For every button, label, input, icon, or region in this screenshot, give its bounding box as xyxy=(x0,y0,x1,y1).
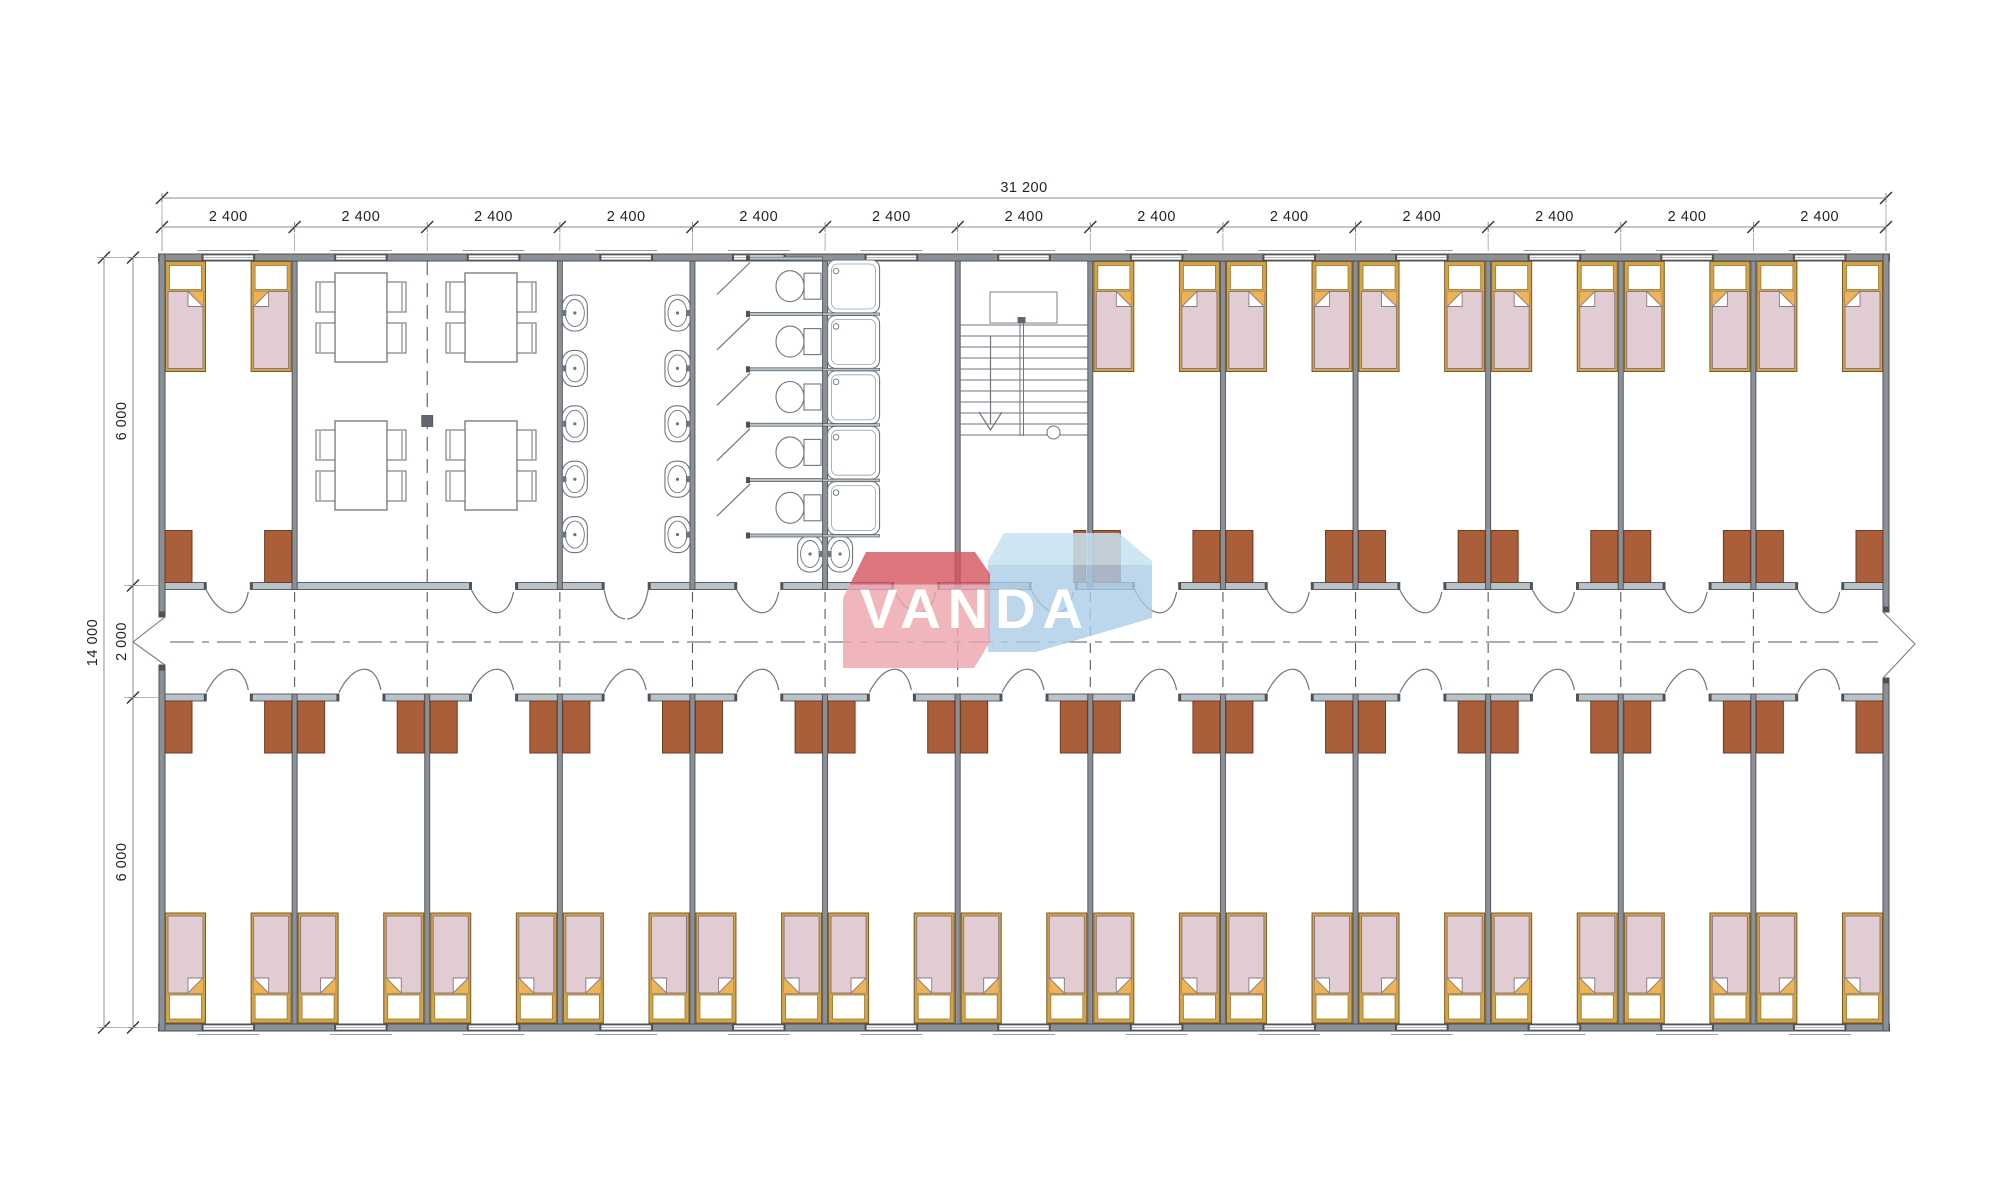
corridor-wall xyxy=(292,694,339,701)
stall-post xyxy=(746,366,750,372)
door-leaf xyxy=(1359,701,1386,753)
window-jamb xyxy=(1049,255,1051,261)
window-jamb xyxy=(467,255,469,261)
chair xyxy=(517,323,536,353)
corridor-wall xyxy=(1444,694,1491,701)
stall-divider xyxy=(748,312,823,315)
bed-pillow xyxy=(170,266,202,290)
module-width-label: 2 400 xyxy=(1535,209,1574,225)
shower-divider xyxy=(823,313,880,316)
wall-end-cap xyxy=(1046,694,1049,701)
drain xyxy=(573,311,576,314)
chair xyxy=(316,282,335,312)
stall-post xyxy=(746,533,750,539)
chair xyxy=(316,430,335,460)
window-jamb xyxy=(1447,255,1449,261)
corridor-wall xyxy=(1444,583,1491,590)
window-jamb xyxy=(1130,255,1132,261)
window-jamb xyxy=(784,1025,786,1031)
wall-end-cap xyxy=(159,612,165,618)
drain xyxy=(676,367,679,370)
bed-pillow xyxy=(255,995,287,1019)
tap xyxy=(819,551,823,557)
door-swing-arc xyxy=(1798,590,1840,613)
door-leaf xyxy=(1359,531,1386,583)
chair xyxy=(446,430,465,460)
tap xyxy=(686,310,690,316)
corridor-wall xyxy=(1179,694,1226,701)
corridor-wall xyxy=(1220,583,1267,590)
corridor-wall xyxy=(1842,583,1889,590)
wall-end-cap xyxy=(734,583,737,590)
wall-end-cap xyxy=(781,583,784,590)
window-jamb xyxy=(1793,1025,1795,1031)
wall-end-cap xyxy=(1709,583,1712,590)
wall-end-cap xyxy=(159,665,165,671)
door-swing-arc xyxy=(1400,669,1442,692)
stall-post xyxy=(746,256,750,262)
door-swing-arc xyxy=(339,669,381,692)
chair xyxy=(316,471,335,501)
door-swing-arc xyxy=(627,590,648,619)
door-leaf xyxy=(1624,531,1651,583)
bed-pillow xyxy=(1847,995,1879,1019)
corridor-wall xyxy=(1751,583,1798,590)
corridor-wall xyxy=(1179,583,1226,590)
exterior-wall-right xyxy=(1883,254,1889,612)
door-leaf xyxy=(928,701,955,753)
bed-pillow xyxy=(1449,266,1481,290)
stall-door xyxy=(717,484,750,516)
bed-pillow xyxy=(786,995,818,1019)
window-jamb xyxy=(518,1025,520,1031)
wall-end-cap xyxy=(913,694,916,701)
door-leaf xyxy=(1756,531,1783,583)
module-wall-bottom xyxy=(690,694,695,1024)
door-leaf xyxy=(165,701,192,753)
door-swing-arc xyxy=(604,669,646,692)
drain xyxy=(676,533,679,536)
bed-pillow xyxy=(1496,995,1528,1019)
column-marker xyxy=(422,416,433,427)
window-jamb xyxy=(1314,1025,1316,1031)
drain xyxy=(573,533,576,536)
dining-table xyxy=(335,421,387,510)
chair xyxy=(387,323,406,353)
stall-door xyxy=(717,263,750,295)
corridor-wall xyxy=(1576,583,1623,590)
door-leaf xyxy=(1060,701,1087,753)
door-leaf xyxy=(430,701,457,753)
corridor-wall xyxy=(1353,583,1400,590)
window-jamb xyxy=(518,255,520,261)
window-jamb xyxy=(1528,1025,1530,1031)
wall-end-cap xyxy=(1530,694,1533,701)
window-jamb xyxy=(1395,255,1397,261)
wall-end-cap xyxy=(602,583,605,590)
corridor-wall xyxy=(160,583,207,590)
corridor-end-door xyxy=(1883,612,1915,678)
drain xyxy=(573,367,576,370)
corridor-wall xyxy=(781,694,828,701)
module-wall-top xyxy=(1751,257,1756,590)
window-jamb xyxy=(1660,1025,1662,1031)
wall-end-cap xyxy=(1265,583,1268,590)
drain xyxy=(808,552,811,555)
wall-end-cap xyxy=(1795,694,1798,701)
wall-end-cap xyxy=(1709,694,1712,701)
drain xyxy=(676,422,679,425)
module-wall-bottom xyxy=(1220,694,1225,1024)
module-wall-bottom xyxy=(1353,694,1358,1024)
wall-end-cap xyxy=(516,694,519,701)
wall-end-cap xyxy=(1842,694,1845,701)
door-swing-arc xyxy=(1267,590,1309,613)
chair xyxy=(316,323,335,353)
bed-pillow xyxy=(255,266,287,290)
window-jamb xyxy=(386,1025,388,1031)
wall-end-cap xyxy=(250,694,253,701)
door-leaf xyxy=(530,701,557,753)
wall-end-cap xyxy=(1397,583,1400,590)
wall-end-cap xyxy=(1444,694,1447,701)
drain xyxy=(573,422,576,425)
tap xyxy=(562,476,566,482)
corridor-wall xyxy=(160,694,207,701)
bed-pillow xyxy=(653,995,685,1019)
staircase xyxy=(960,292,1088,439)
corridor-wall xyxy=(955,694,1002,701)
corridor-wall xyxy=(1353,694,1400,701)
module-wall-bottom xyxy=(1618,694,1623,1024)
wall-end-cap xyxy=(1444,583,1447,590)
corridor-wall xyxy=(250,583,297,590)
door-leaf xyxy=(1756,701,1783,753)
window-jamb xyxy=(334,1025,336,1031)
bed-pillow xyxy=(1183,995,1215,1019)
module-width-label: 2 400 xyxy=(1402,209,1441,225)
wall-end-cap xyxy=(1000,694,1003,701)
shower-divider xyxy=(823,368,880,371)
wall-end-cap xyxy=(1795,583,1798,590)
window-jamb xyxy=(1660,255,1662,261)
wall-end-cap xyxy=(250,583,253,590)
stall-door xyxy=(717,429,750,461)
corridor-wall xyxy=(648,583,695,590)
window-jamb xyxy=(732,1025,734,1031)
corridor-width-label: 2 000 xyxy=(114,622,130,661)
bed-pillow xyxy=(1628,995,1660,1019)
module-wall-top xyxy=(1486,257,1491,590)
module-wall-top xyxy=(823,257,828,590)
door-swing-arc xyxy=(1532,669,1574,692)
window-jamb xyxy=(386,255,388,261)
toilet-tank xyxy=(804,495,821,521)
window-jamb xyxy=(651,1025,653,1031)
wall-end-cap xyxy=(1842,583,1845,590)
corridor-wall xyxy=(1576,694,1623,701)
window-jamb xyxy=(916,1025,918,1031)
wall-end-cap xyxy=(602,694,605,701)
drain xyxy=(676,478,679,481)
toilet-tank xyxy=(804,439,821,465)
window-jamb xyxy=(1844,1025,1846,1031)
tap xyxy=(562,310,566,316)
door-leaf xyxy=(1093,701,1120,753)
door-swing-arc xyxy=(1665,590,1707,613)
door-leaf xyxy=(563,701,590,753)
stall-divider xyxy=(748,257,823,260)
module-wall-bottom xyxy=(1486,694,1491,1024)
bed-pillow xyxy=(435,995,467,1019)
module-width-label: 2 400 xyxy=(607,209,646,225)
window-jamb xyxy=(651,255,653,261)
window-jamb xyxy=(1314,255,1316,261)
window-jamb xyxy=(1528,255,1530,261)
corridor-wall xyxy=(1751,694,1798,701)
dining-table xyxy=(465,273,517,362)
module-wall-top xyxy=(292,257,297,590)
door-swing-arc xyxy=(472,669,514,692)
module-width-label: 2 400 xyxy=(872,209,911,225)
tap xyxy=(562,365,566,371)
wall-end-cap xyxy=(516,583,519,590)
toilet-bowl xyxy=(776,382,804,413)
corridor-wall xyxy=(690,694,737,701)
bed-pillow xyxy=(700,995,732,1019)
door-swing-arc xyxy=(206,669,248,692)
corridor-wall xyxy=(1842,694,1889,701)
module-width-label: 2 400 xyxy=(342,209,381,225)
window-jamb xyxy=(1262,255,1264,261)
chair xyxy=(387,430,406,460)
floor-plan-canvas: 31 2002 4002 4002 4002 4002 4002 4002 40… xyxy=(0,0,2000,1200)
tap xyxy=(686,532,690,538)
door-leaf xyxy=(397,701,424,753)
window-jamb xyxy=(1130,1025,1132,1031)
bed-pillow xyxy=(567,995,599,1019)
wall-end-cap xyxy=(1179,583,1182,590)
window-jamb xyxy=(253,255,255,261)
shower-divider xyxy=(823,479,880,482)
bed-pillow xyxy=(1230,266,1262,290)
wall-end-cap xyxy=(1576,583,1579,590)
door-leaf xyxy=(1193,701,1220,753)
module-width-label: 2 400 xyxy=(1137,209,1176,225)
corridor-wall xyxy=(823,694,870,701)
window-jamb xyxy=(997,1025,999,1031)
tap xyxy=(686,365,690,371)
door-swing-arc xyxy=(1798,669,1840,692)
corridor-wall xyxy=(1486,583,1533,590)
toilet-tank xyxy=(804,273,821,299)
corridor-wall xyxy=(1311,583,1358,590)
window-jamb xyxy=(253,1025,255,1031)
corridor-wall xyxy=(781,583,828,590)
bed-pillow xyxy=(833,995,865,1019)
corridor-wall xyxy=(1709,694,1756,701)
corridor-wall xyxy=(557,583,604,590)
door-leaf xyxy=(1193,531,1220,583)
bed-pillow xyxy=(302,995,334,1019)
module-wall-top xyxy=(1220,257,1225,590)
corridor-wall xyxy=(1486,694,1533,701)
chair xyxy=(446,323,465,353)
door-leaf xyxy=(1624,701,1651,753)
toilet-bowl xyxy=(776,437,804,468)
bed-pillow xyxy=(1761,995,1793,1019)
door-leaf xyxy=(165,531,192,583)
stall-door xyxy=(717,318,750,350)
shower-divider xyxy=(823,424,880,427)
corridor-wall xyxy=(250,694,297,701)
tap xyxy=(562,421,566,427)
bed-pillow xyxy=(388,995,420,1019)
exterior-wall-right xyxy=(1883,678,1889,1031)
window-jamb xyxy=(732,255,734,261)
door-leaf xyxy=(1856,531,1883,583)
bed-pillow xyxy=(965,995,997,1019)
corridor-wall xyxy=(690,583,737,590)
module-wall-top xyxy=(557,257,562,590)
bed-pillow xyxy=(1363,995,1395,1019)
chair xyxy=(446,282,465,312)
wall-end-cap xyxy=(1883,678,1889,684)
toilet-bowl xyxy=(776,326,804,357)
stall-post xyxy=(746,477,750,483)
corridor-end-door xyxy=(133,617,165,665)
door-leaf xyxy=(1226,531,1253,583)
wall-end-cap xyxy=(469,694,472,701)
corridor-wall xyxy=(1046,694,1093,701)
bed-pillow xyxy=(1714,266,1746,290)
door-swing-arc xyxy=(737,590,779,613)
bed-pillow xyxy=(1316,995,1348,1019)
stall-divider xyxy=(748,479,823,482)
stall-post xyxy=(746,422,750,428)
door-leaf xyxy=(1723,701,1750,753)
window-jamb xyxy=(997,255,999,261)
wall-end-cap xyxy=(469,583,472,590)
door-leaf xyxy=(828,701,855,753)
module-width-label: 2 400 xyxy=(474,209,513,225)
wall-end-cap xyxy=(648,694,651,701)
tap xyxy=(686,421,690,427)
window-jamb xyxy=(599,1025,601,1031)
wall-end-cap xyxy=(1576,694,1579,701)
door-leaf xyxy=(1326,531,1353,583)
overall-width-label: 31 200 xyxy=(1000,180,1047,196)
door-leaf xyxy=(265,701,292,753)
door-leaf xyxy=(265,531,292,583)
wall-end-cap xyxy=(204,694,207,701)
door-leaf xyxy=(1458,531,1485,583)
door-leaf xyxy=(298,701,325,753)
chair xyxy=(517,282,536,312)
bed-pillow xyxy=(1581,266,1613,290)
stall-divider xyxy=(748,534,823,537)
toilet-bowl xyxy=(776,271,804,302)
window-jamb xyxy=(1712,255,1714,261)
bed-pillow xyxy=(1363,266,1395,290)
bed-pillow xyxy=(1714,995,1746,1019)
window-jamb xyxy=(599,255,601,261)
window-jamb xyxy=(202,1025,204,1031)
toilet-tank xyxy=(804,384,821,410)
stair-handrail-end xyxy=(1047,426,1060,439)
module-width-label: 2 400 xyxy=(1668,209,1707,225)
chair xyxy=(387,282,406,312)
door-leaf xyxy=(795,701,822,753)
wall-end-cap xyxy=(1311,583,1314,590)
door-leaf xyxy=(1491,531,1518,583)
window-jamb xyxy=(1793,255,1795,261)
bed-pillow xyxy=(1761,266,1793,290)
door-leaf xyxy=(695,701,722,753)
bed-pillow xyxy=(1230,995,1262,1019)
logo-text: VANDA xyxy=(860,581,1090,637)
vanda-logo: VANDA xyxy=(830,525,1170,675)
bed-pillow xyxy=(1098,995,1130,1019)
stall-divider xyxy=(748,423,823,426)
dining-table xyxy=(465,421,517,510)
bed-pillow xyxy=(1051,995,1083,1019)
module-wall-bottom xyxy=(1751,694,1756,1024)
corridor-wall xyxy=(913,694,960,701)
exterior-wall-left xyxy=(159,665,165,1031)
module-wall-top xyxy=(1618,257,1623,590)
window-jamb xyxy=(916,255,918,261)
wall-end-cap xyxy=(648,583,651,590)
module-wall-bottom xyxy=(425,694,430,1024)
door-swing-arc xyxy=(737,669,779,692)
door-swing-arc xyxy=(1267,669,1309,692)
window-jamb xyxy=(1712,1025,1714,1031)
wall-end-cap xyxy=(1530,583,1533,590)
toilet-bowl xyxy=(776,492,804,523)
wall-end-cap xyxy=(1397,694,1400,701)
window-jamb xyxy=(1181,1025,1183,1031)
bed-pillow xyxy=(1183,266,1215,290)
chair xyxy=(517,430,536,460)
door-leaf xyxy=(1491,701,1518,753)
module-width-label: 2 400 xyxy=(1800,209,1839,225)
module-wall-top xyxy=(690,257,695,590)
bed-pillow xyxy=(1847,266,1879,290)
door-swing-arc xyxy=(1665,669,1707,692)
bed-pillow xyxy=(1496,266,1528,290)
wall-end-cap xyxy=(1132,694,1135,701)
corridor-wall xyxy=(516,583,563,590)
overall-depth-label: 14 000 xyxy=(85,619,101,666)
corridor-wall xyxy=(1618,583,1665,590)
corridor-wall xyxy=(292,583,471,590)
door-leaf xyxy=(1226,701,1253,753)
window-jamb xyxy=(1579,255,1581,261)
bed-pillow xyxy=(1449,995,1481,1019)
door-leaf xyxy=(1326,701,1353,753)
tap xyxy=(686,476,690,482)
room-depth-top-label: 6 000 xyxy=(114,402,130,441)
window-jamb xyxy=(1049,1025,1051,1031)
room-depth-bottom-label: 6 000 xyxy=(114,843,130,882)
door-leaf xyxy=(1458,701,1485,753)
wall-end-cap xyxy=(1663,694,1666,701)
wall-end-cap xyxy=(383,694,386,701)
window-jamb xyxy=(1844,255,1846,261)
wall-end-cap xyxy=(867,694,870,701)
corridor-wall xyxy=(425,694,472,701)
